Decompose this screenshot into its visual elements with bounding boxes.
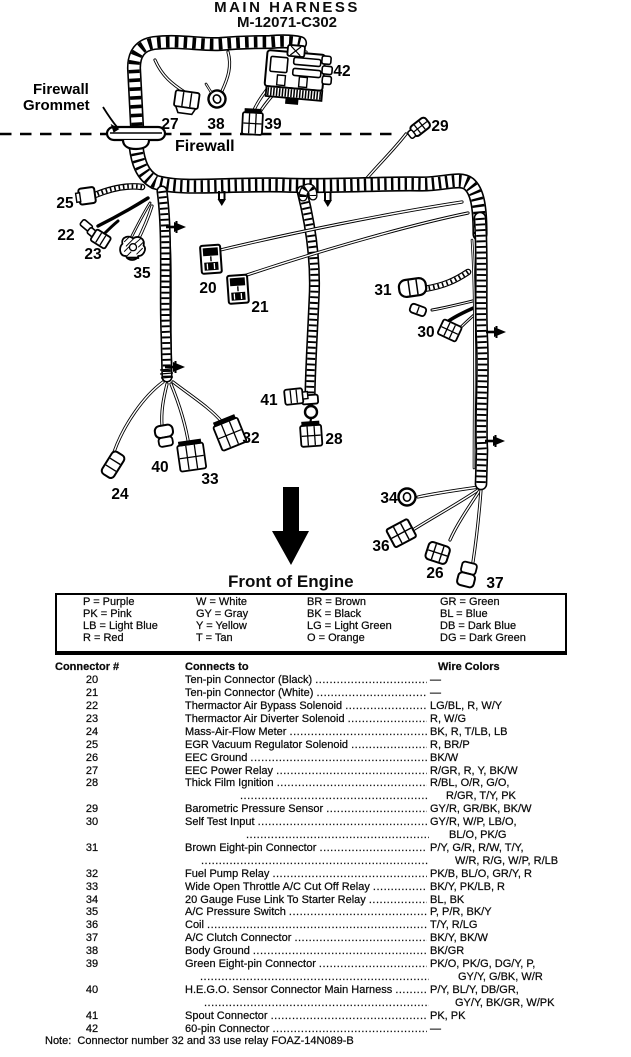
svg-text:41: 41 [260,392,278,409]
svg-text:24: 24 [111,486,129,503]
svg-text:21: 21 [251,299,269,316]
svg-text:Grommet: Grommet [23,97,90,114]
svg-text:38: 38 [207,116,225,133]
svg-text:26: 26 [426,565,444,582]
svg-text:36: 36 [372,538,390,555]
svg-text:20: 20 [199,280,216,297]
svg-text:31: 31 [374,282,392,299]
svg-text:42: 42 [333,63,350,80]
svg-text:39: 39 [264,116,282,133]
svg-text:32: 32 [242,430,259,447]
svg-text:40: 40 [151,459,168,476]
svg-text:34: 34 [380,490,398,507]
svg-text:Firewall: Firewall [33,81,89,98]
svg-text:30: 30 [417,324,434,341]
svg-text:29: 29 [431,118,449,135]
svg-text:28: 28 [325,431,343,448]
svg-text:33: 33 [201,471,219,488]
svg-text:25: 25 [56,195,74,212]
svg-text:37: 37 [486,575,503,592]
svg-text:23: 23 [84,246,102,263]
svg-text:35: 35 [133,265,151,282]
svg-text:Firewall: Firewall [175,138,235,155]
svg-text:27: 27 [161,116,178,133]
svg-text:22: 22 [57,227,74,244]
